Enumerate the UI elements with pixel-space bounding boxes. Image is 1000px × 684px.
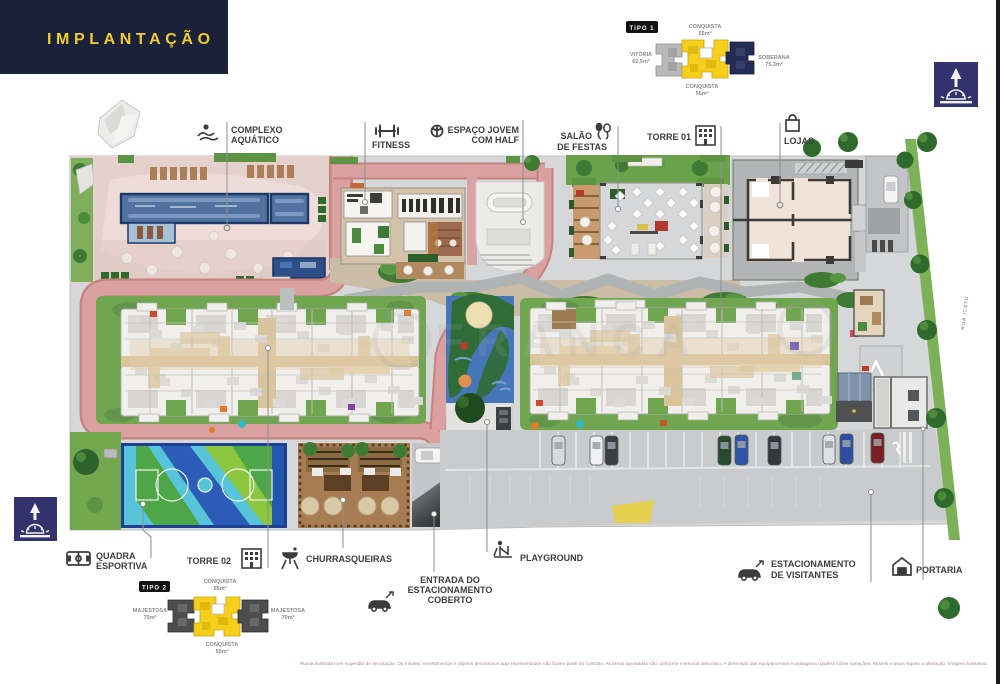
svg-text:ESPAÇO JOVEM: ESPAÇO JOVEM xyxy=(448,125,519,135)
svg-text:TIPO 1: TIPO 1 xyxy=(629,26,654,32)
svg-text:DE FESTAS: DE FESTAS xyxy=(557,142,607,152)
svg-text:ESTACIONAMENTO: ESTACIONAMENTO xyxy=(771,559,856,569)
svg-text:FRANCA: FRANCA xyxy=(436,314,702,366)
svg-text:MAJESTOSA: MAJESTOSA xyxy=(271,608,305,614)
svg-text:ENTRADA DO: ENTRADA DO xyxy=(420,575,480,585)
svg-text:PLAYGROUND: PLAYGROUND xyxy=(520,553,584,563)
svg-text:SOBERANA: SOBERANA xyxy=(758,55,790,61)
svg-text:TORRE 02: TORRE 02 xyxy=(187,556,231,566)
svg-text:70m²: 70m² xyxy=(282,614,295,621)
svg-text:55m²: 55m² xyxy=(216,648,229,655)
svg-text:55m²: 55m² xyxy=(696,90,709,97)
svg-text:COMPLEXO: COMPLEXO xyxy=(231,125,283,135)
svg-text:FITNESS: FITNESS xyxy=(372,140,410,150)
svg-text:AQUÁTICO: AQUÁTICO xyxy=(231,135,279,145)
svg-text:55m²: 55m² xyxy=(214,585,227,592)
svg-text:CONQUISTA: CONQUISTA xyxy=(686,84,719,90)
svg-text:CONQUISTA: CONQUISTA xyxy=(689,24,722,30)
svg-text:MAJESTOSA: MAJESTOSA xyxy=(133,608,167,614)
svg-text:75,3m²: 75,3m² xyxy=(765,61,783,68)
svg-text:CONQUISTA: CONQUISTA xyxy=(206,642,239,648)
svg-text:TORRE 01: TORRE 01 xyxy=(647,132,691,142)
svg-text:LOJAS: LOJAS xyxy=(784,136,814,146)
svg-text:DE VISITANTES: DE VISITANTES xyxy=(771,570,838,580)
svg-text:PORTARIA: PORTARIA xyxy=(916,565,963,575)
svg-text:55m²: 55m² xyxy=(699,30,712,37)
svg-text:ESPORTIVA: ESPORTIVA xyxy=(96,561,148,571)
svg-text:SALÃO: SALÃO xyxy=(561,131,593,141)
svg-text:COBERTO: COBERTO xyxy=(428,595,473,605)
svg-text:IMPLANTAÇÃO: IMPLANTAÇÃO xyxy=(47,28,215,48)
svg-text:Planta ilustrada com sugestão: Planta ilustrada com sugestão de decoraç… xyxy=(300,661,987,667)
svg-text:TIPO 2: TIPO 2 xyxy=(142,586,167,592)
svg-text:VITÓRIA: VITÓRIA xyxy=(630,50,652,58)
svg-text:ESTACIONAMENTO: ESTACIONAMENTO xyxy=(408,585,493,595)
svg-text:CHURRASQUEIRAS: CHURRASQUEIRAS xyxy=(306,554,392,564)
svg-text:62,5m²: 62,5m² xyxy=(632,58,650,65)
svg-text:70m²: 70m² xyxy=(144,614,157,621)
svg-text:CONQUISTA: CONQUISTA xyxy=(204,579,237,585)
svg-text:COM HALF: COM HALF xyxy=(472,135,520,145)
svg-text:QUADRA: QUADRA xyxy=(96,551,136,561)
